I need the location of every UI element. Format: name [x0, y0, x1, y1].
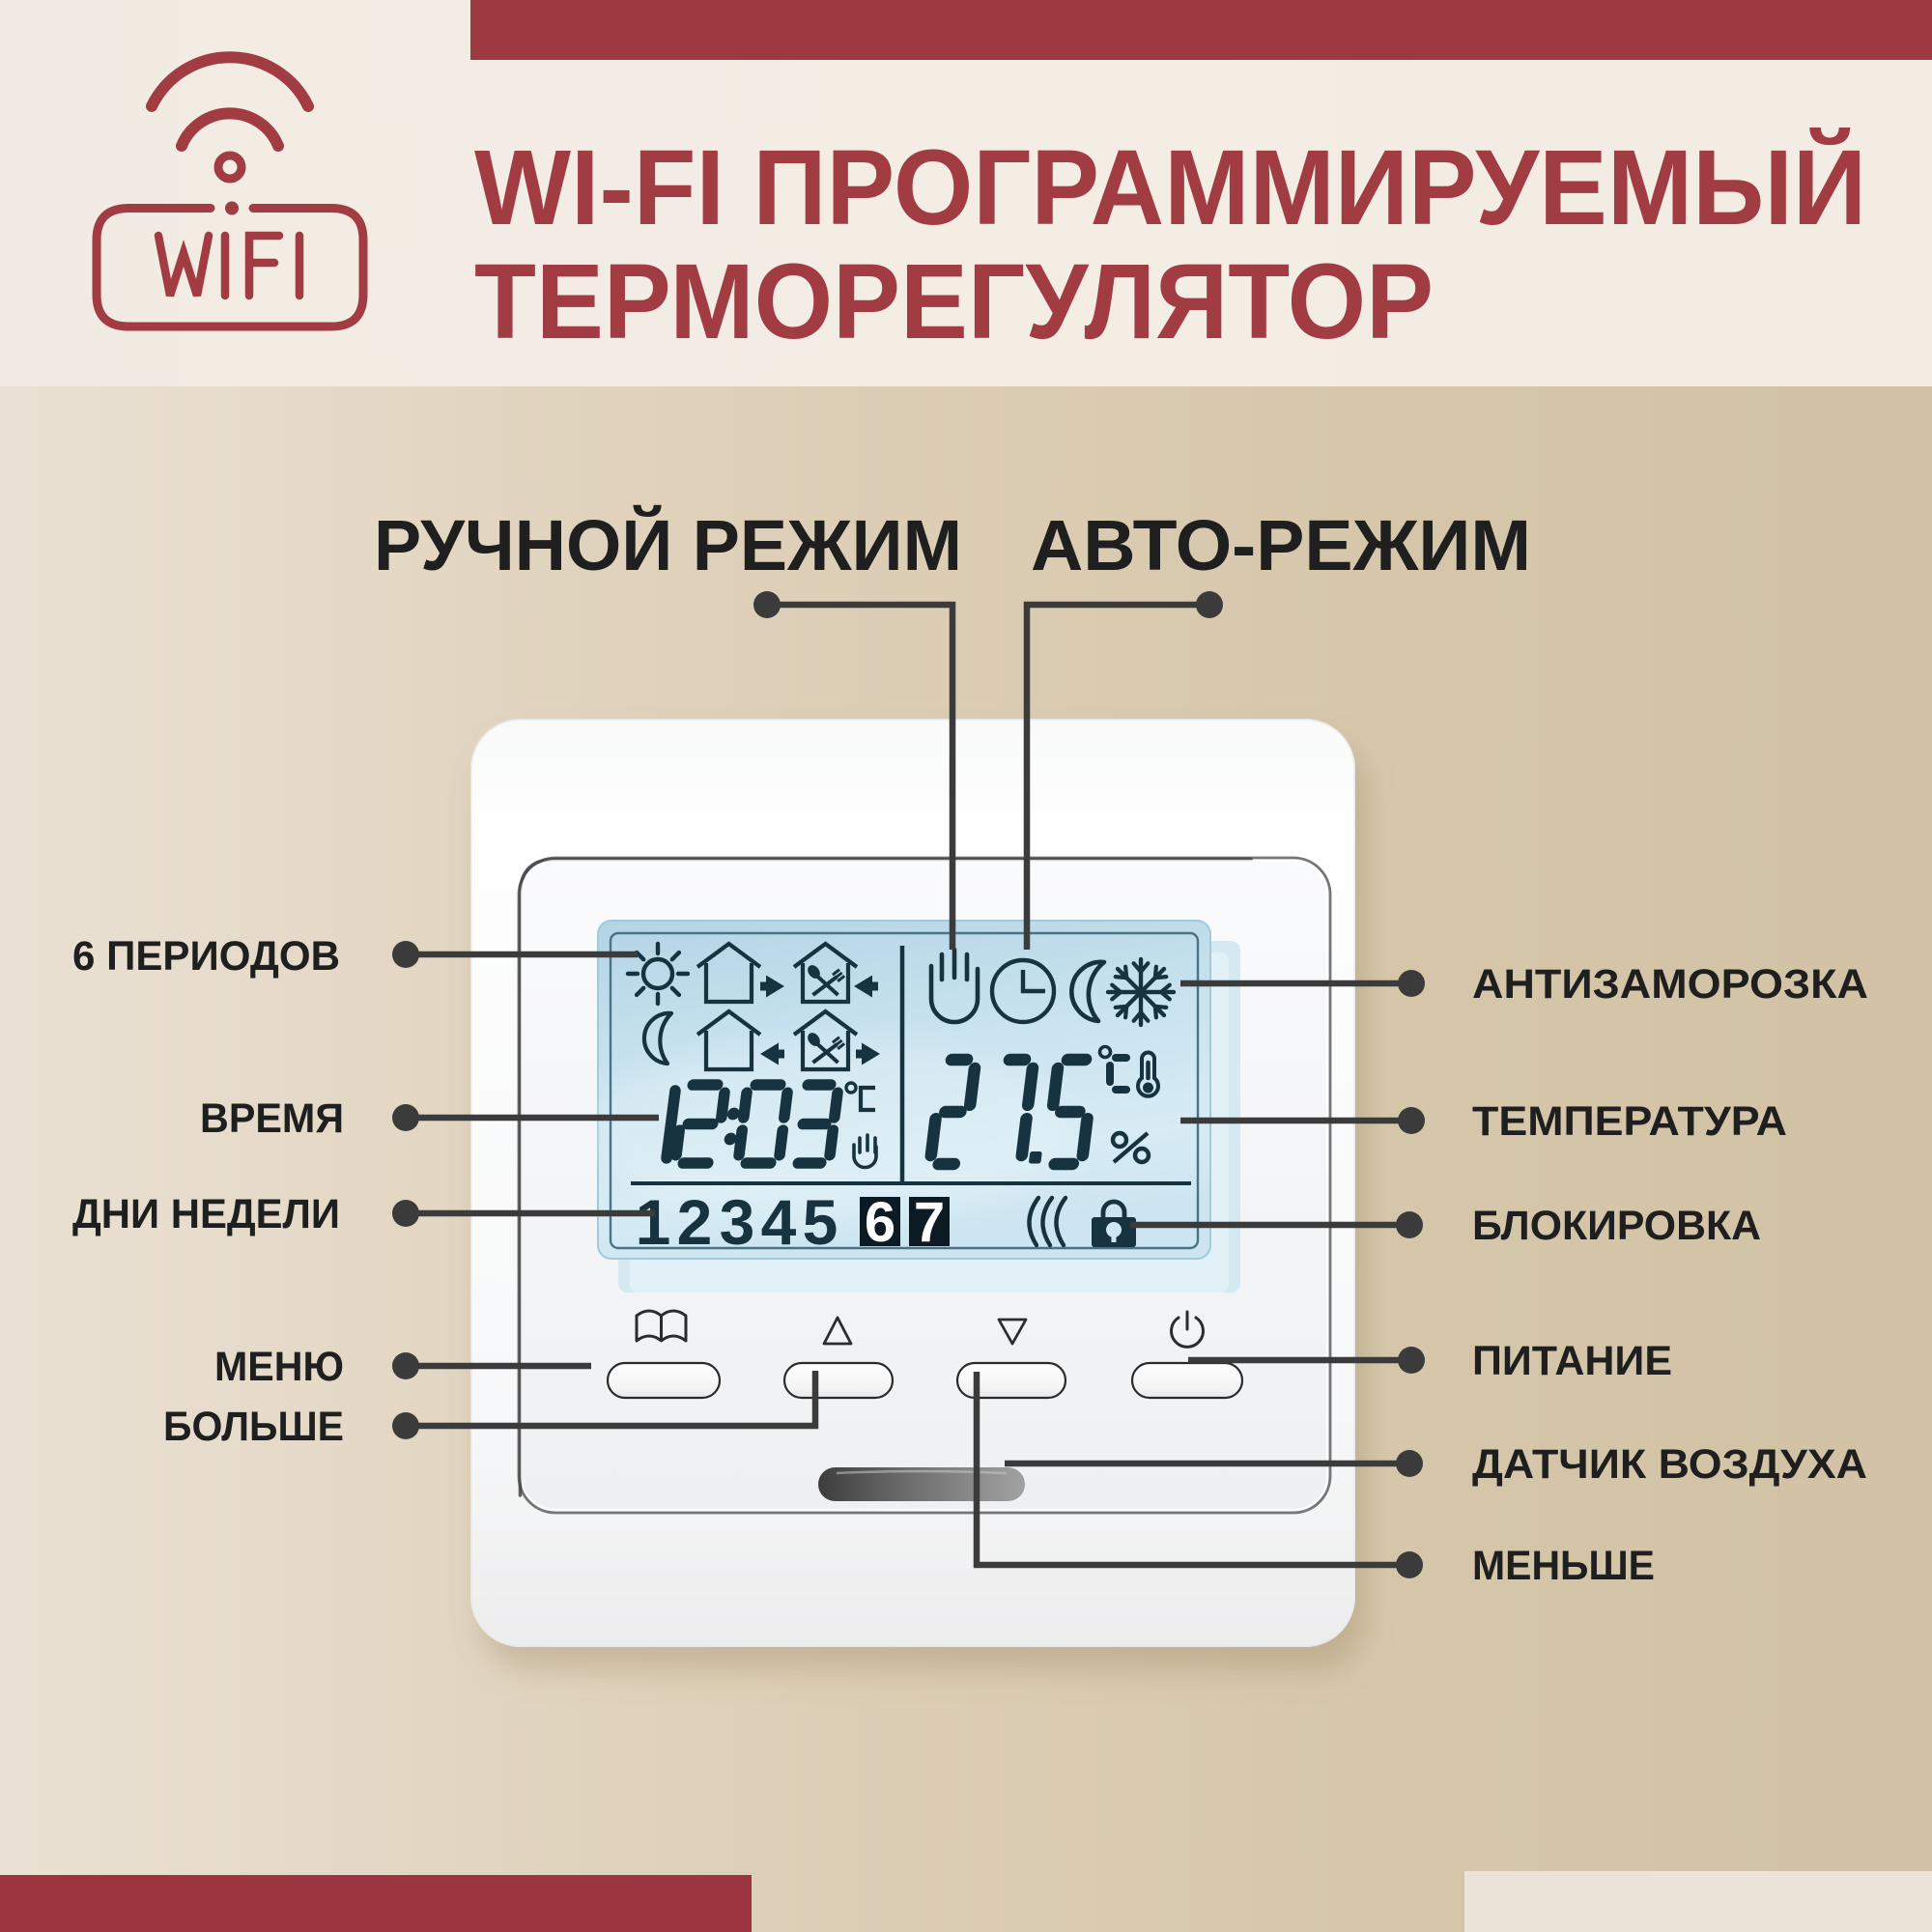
svg-text:3: 3 [720, 1186, 755, 1258]
svg-text:ДНИ НЕДЕЛИ: ДНИ НЕДЕЛИ [72, 1191, 340, 1237]
svg-text:АВТО-РЕЖИМ: АВТО-РЕЖИМ [1031, 505, 1531, 585]
svg-text:ПИТАНИЕ: ПИТАНИЕ [1472, 1338, 1672, 1384]
svg-text:6: 6 [865, 1191, 895, 1254]
svg-text:5: 5 [803, 1186, 838, 1258]
svg-text:ТЕРМОРЕГУЛЯТОР: ТЕРМОРЕГУЛЯТОР [474, 242, 1434, 361]
svg-text:АНТИЗАМОРОЗКА: АНТИЗАМОРОЗКА [1472, 961, 1868, 1008]
svg-text:БЛОКИРОВКА: БЛОКИРОВКА [1472, 1203, 1761, 1249]
svg-text:ВРЕМЯ: ВРЕМЯ [200, 1095, 344, 1142]
svg-text:1: 1 [636, 1186, 671, 1258]
svg-text:БОЛЬШЕ: БОЛЬШЕ [163, 1404, 344, 1450]
svg-text:7: 7 [914, 1191, 945, 1254]
svg-text:РУЧНОЙ РЕЖИМ: РУЧНОЙ РЕЖИМ [374, 504, 962, 585]
svg-text:МЕНЮ: МЕНЮ [214, 1344, 344, 1390]
svg-text:2: 2 [677, 1186, 713, 1258]
svg-text:WI-FI ПРОГРАММИРУЕМЫЙ: WI-FI ПРОГРАММИРУЕМЫЙ [474, 128, 1866, 247]
svg-text:ДАТЧИК ВОЗДУХА: ДАТЧИК ВОЗДУХА [1472, 1441, 1867, 1488]
svg-text:4: 4 [761, 1186, 797, 1258]
svg-text:МЕНЬШЕ: МЕНЬШЕ [1472, 1543, 1655, 1589]
svg-text:6 ПЕРИОДОВ: 6 ПЕРИОДОВ [72, 933, 340, 980]
svg-text:ТЕМПЕРАТУРА: ТЕМПЕРАТУРА [1472, 1098, 1787, 1145]
